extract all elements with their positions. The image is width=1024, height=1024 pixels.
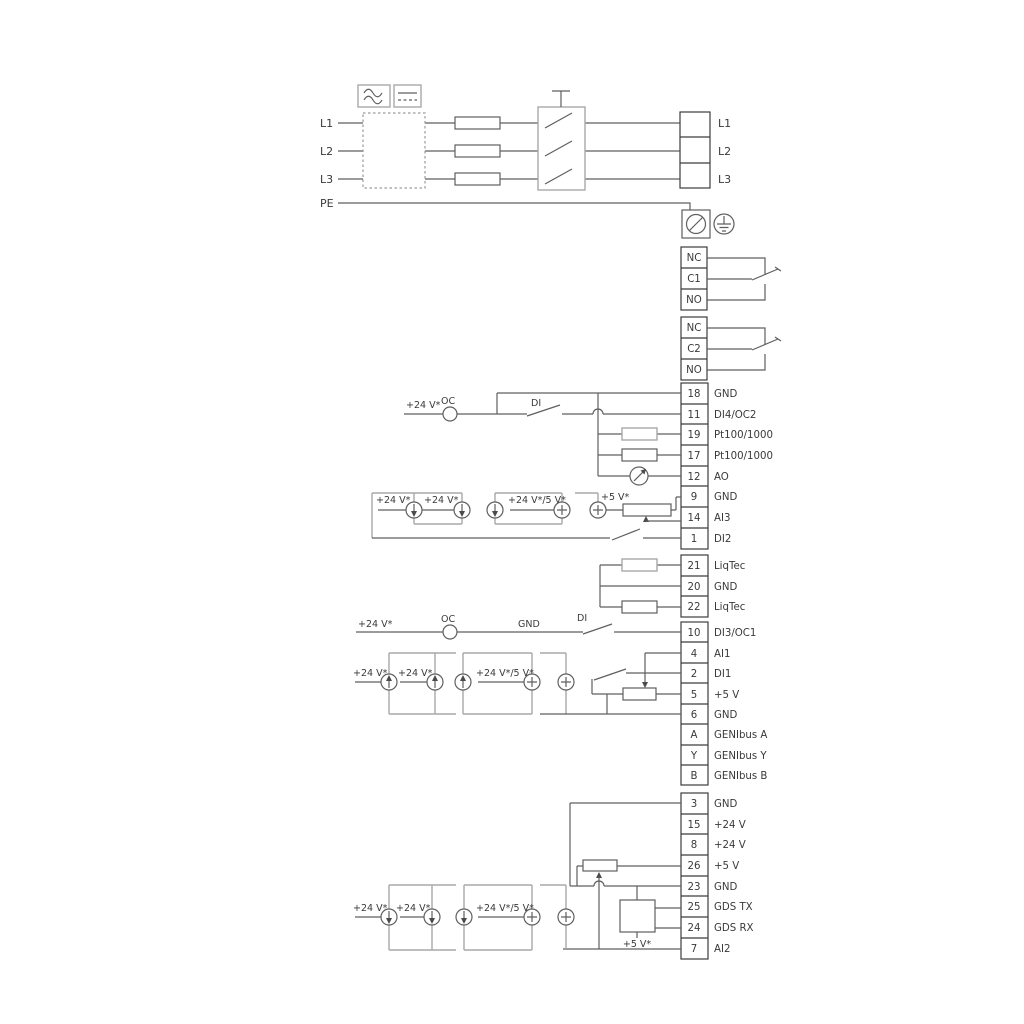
pt100-resistor-2 <box>622 449 657 461</box>
open-collector-icon <box>443 407 457 421</box>
gnd3-line <box>570 803 681 886</box>
pe-line <box>338 203 690 210</box>
terminal-label: GDS TX <box>714 902 753 913</box>
terminal-number: 3 <box>691 799 697 810</box>
terminal-label: GND <box>714 799 738 810</box>
signal-hop-arc <box>593 409 681 414</box>
terminal-label: +5 V <box>714 690 739 701</box>
voltage-source-icon <box>524 909 574 925</box>
terminal-label: AI3 <box>714 513 730 524</box>
terminal-label: Pt100/1000 <box>714 430 773 441</box>
terminal-number: B <box>691 771 698 782</box>
strip-a-wiring: +24 V* OC DI +24 V* +24 V* +24 V*/5 V* <box>372 393 681 540</box>
terminal-number: 5 <box>691 690 697 701</box>
relay-2: NC C2 NO <box>681 317 781 380</box>
dc-symbol-icon <box>394 85 421 107</box>
terminal-label: +24 V <box>714 820 746 831</box>
terminal-label: L2 <box>718 145 731 158</box>
terminal-number: 9 <box>691 492 697 503</box>
wiper-arrow <box>642 682 648 688</box>
open-collector-icon <box>443 625 457 639</box>
terminal-label: GENIbus B <box>714 771 767 782</box>
screw-terminal-icon <box>682 210 710 238</box>
mains-disconnect-switch <box>538 91 585 190</box>
terminal-label: +24 V <box>714 840 746 851</box>
terminal-number: 22 <box>688 602 701 613</box>
terminal-number: NO <box>686 365 702 376</box>
terminal-label: GND <box>714 492 738 503</box>
terminal-strip-d: 3 GND 15 +24 V 8 +24 V 26 +5 V 23 GND 25… <box>681 793 754 959</box>
relay-1: NC C1 NO <box>681 247 781 310</box>
gds-sensor-box: +5 V* <box>620 886 681 950</box>
terminal-number: 10 <box>688 628 701 639</box>
terminal-label: DI3/OC1 <box>714 628 756 639</box>
filter-box <box>363 113 425 188</box>
pt100-resistor-1 <box>622 428 657 440</box>
voltage-source-icon <box>554 502 606 518</box>
fuse-l3 <box>455 173 500 185</box>
earth-ground-icon <box>714 214 734 234</box>
strip-b-wiring <box>600 559 681 613</box>
power-section: L1 L2 L3 PE <box>320 85 734 238</box>
strip-c-wiring: +24 V* OC GND DI +24 V* +24 V* +24 V*/5 … <box>353 613 681 714</box>
terminal-label: GND <box>714 389 738 400</box>
power-input-label: PE <box>320 197 334 210</box>
current-source-icon <box>381 909 472 925</box>
fuse-l1 <box>455 117 500 129</box>
terminal-number: 19 <box>688 430 701 441</box>
terminal-number: NC <box>687 323 702 334</box>
terminal-number: 1 <box>691 534 697 545</box>
terminal-label: AI2 <box>714 944 730 955</box>
terminal-label: L1 <box>718 117 731 130</box>
wiring-diagram: L1 L2 L3 PE <box>0 0 1024 1024</box>
voltage-source-icon <box>524 674 574 690</box>
terminal-number: 14 <box>688 513 701 524</box>
terminal-number: 11 <box>688 410 701 421</box>
supply-label: +24 V* <box>424 495 459 506</box>
terminal-number: Y <box>690 751 698 762</box>
terminal-number: 25 <box>688 902 701 913</box>
supply-label: +5 V* <box>601 492 630 503</box>
digital-input-label: DI <box>577 613 587 624</box>
terminal-number: 12 <box>688 472 701 483</box>
terminal-number: NC <box>687 253 702 264</box>
terminal-number: 17 <box>688 451 701 462</box>
ai1-line <box>645 653 681 682</box>
terminal-label: GENIbus Y <box>714 751 767 762</box>
mains-output-terminals: L1 L2 L3 <box>680 112 731 188</box>
terminal-label: GND <box>714 582 738 593</box>
potentiometer-ai1 <box>592 688 681 714</box>
analog-output-meter-icon <box>598 467 681 485</box>
strip-d-wiring: +5 V* +24 V* +24 V* +24 V*/5 V* <box>353 803 681 950</box>
terminal-label: DI2 <box>714 534 731 545</box>
power-input-label: L1 <box>320 117 333 130</box>
changeover-contact-1 <box>707 258 781 300</box>
open-collector-label: OC <box>441 396 455 407</box>
terminal-number: 2 <box>691 669 697 680</box>
terminal-number: 6 <box>691 710 697 721</box>
terminal-number: 26 <box>688 861 701 872</box>
power-input-label: L2 <box>320 145 333 158</box>
supply-label: +5 V* <box>623 939 652 950</box>
terminal-label: DI1 <box>714 669 731 680</box>
gnd23-line-with-hop <box>570 881 681 886</box>
di2-switch <box>372 529 681 540</box>
terminal-number: 18 <box>688 389 701 400</box>
terminal-strip-a: 18 GND 11 DI4/OC2 19 Pt100/1000 17 Pt100… <box>681 383 773 549</box>
terminal-label: AO <box>714 472 729 483</box>
terminal-number: C2 <box>687 344 701 355</box>
liqtec-resistor-2 <box>622 601 657 613</box>
terminal-number: A <box>691 730 698 741</box>
supply-label: +24 V* <box>398 668 433 679</box>
terminal-label: LiqTec <box>714 561 745 572</box>
terminal-number: 23 <box>688 882 701 893</box>
supply-label: +24 V* <box>376 495 411 506</box>
diagram-canvas: L1 L2 L3 PE <box>0 0 1024 1024</box>
terminal-label: GND <box>714 710 738 721</box>
fuse-l2 <box>455 145 500 157</box>
terminal-label: Pt100/1000 <box>714 451 773 462</box>
terminal-label: DI4/OC2 <box>714 410 756 421</box>
terminal-number: 20 <box>688 582 701 593</box>
terminal-strip-c: 10 DI3/OC1 4 AI1 2 DI1 5 +5 V 6 GND A GE… <box>681 622 767 785</box>
terminal-number: C1 <box>687 274 701 285</box>
terminal-label: AI1 <box>714 649 730 660</box>
changeover-contact-2 <box>707 328 781 370</box>
terminal-number: 8 <box>691 840 697 851</box>
gnd-label: GND <box>518 619 540 630</box>
liqtec-resistor-1 <box>622 559 657 571</box>
terminal-label: LiqTec <box>714 602 745 613</box>
terminal-number: 21 <box>688 561 701 572</box>
terminal-label: GND <box>714 882 738 893</box>
terminal-number: 15 <box>688 820 701 831</box>
terminal-label: GENIbus A <box>714 730 767 741</box>
open-collector-label: OC <box>441 614 455 625</box>
terminal-strip-b: 21 LiqTec 20 GND 22 LiqTec <box>681 555 745 617</box>
terminal-number: 7 <box>691 944 697 955</box>
supply-label: +24 V* <box>406 400 441 411</box>
digital-input-label: DI <box>531 398 541 409</box>
terminal-number: NO <box>686 295 702 306</box>
terminal-label: +5 V <box>714 861 739 872</box>
supply-label: +24 V* <box>358 619 393 630</box>
terminal-number: 4 <box>691 649 697 660</box>
gnd18-line <box>497 393 681 414</box>
terminal-label: GDS RX <box>714 923 754 934</box>
power-input-label: L3 <box>320 173 333 186</box>
terminal-label: L3 <box>718 173 731 186</box>
terminal-number: 24 <box>688 923 701 934</box>
ac-symbol-icon <box>358 85 390 107</box>
